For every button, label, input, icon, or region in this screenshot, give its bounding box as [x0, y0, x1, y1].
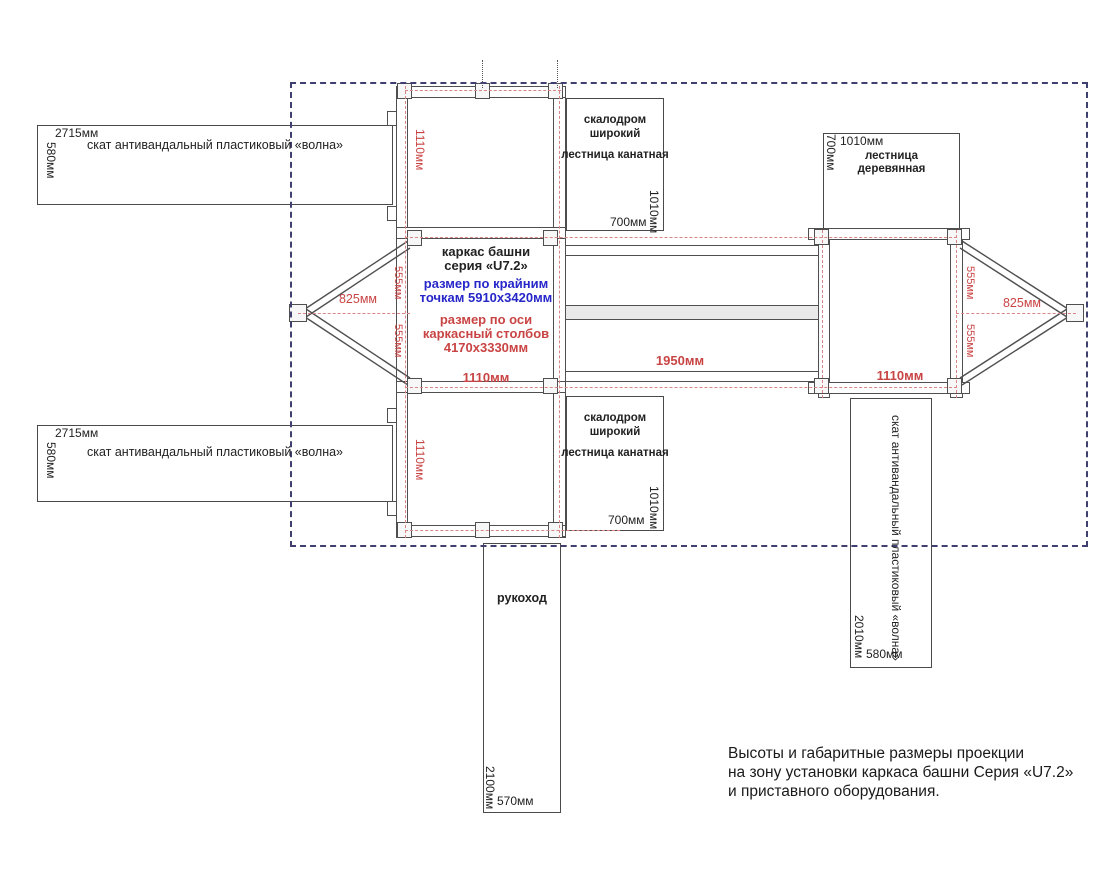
axis-line-825-left — [298, 313, 410, 314]
climb-bottom-label-1: скалодром — [566, 412, 664, 425]
dim-825-right: 825мм — [986, 297, 1058, 310]
dim-1110-right-tower: 1110мм — [845, 369, 955, 382]
monkey-bars-width: 570мм — [497, 795, 534, 808]
outer-size-value: точкам 5910х3420мм — [411, 291, 561, 305]
slide-bottom-label: скат антивандальный пластиковый «волна» — [37, 446, 393, 459]
dim-555-right-bottom: 555мм — [963, 324, 976, 357]
axis-line — [405, 387, 957, 388]
slide-right-width: 580мм — [866, 648, 903, 661]
axis-line — [405, 237, 957, 238]
dim-555-right-top: 555мм — [963, 266, 976, 299]
installation-zone-border — [290, 82, 1088, 547]
outer-size-label: размер по крайним — [411, 277, 561, 291]
axis-size-label-1: размер по оси — [411, 313, 561, 327]
climb-top-label-3: лестница канатная — [548, 149, 682, 162]
caption-line-3: и приставного оборудования. — [728, 782, 1073, 801]
caption-line-2: на зону установки каркаса башни Серия «U… — [728, 763, 1073, 782]
axis-line — [822, 230, 823, 398]
dim-555-left-top: 555мм — [391, 266, 404, 299]
wood-ladder-label-1: лестница — [823, 150, 960, 163]
axis-size-label-2: каркасный столбов — [411, 327, 561, 341]
climb-top-depth: 700мм — [610, 216, 647, 229]
tower-title-1: каркас башни — [411, 245, 561, 259]
axis-tick — [557, 60, 558, 88]
slide-top-label: скат антивандальный пластиковый «волна» — [37, 139, 393, 152]
climb-bottom-label-2: широкий — [566, 426, 664, 439]
axis-line — [956, 230, 957, 398]
axis-line — [405, 86, 406, 538]
wood-ladder-label-2: деревянная — [823, 163, 960, 176]
tower-title-2: серия «U7.2» — [411, 259, 561, 273]
dim-555-left-bottom: 555мм — [391, 324, 404, 357]
climb-top-width: 1010мм — [647, 190, 660, 233]
caption-line-1: Высоты и габаритные размеры проекции — [728, 744, 1073, 763]
monkey-bars-length: 2100мм — [483, 766, 496, 809]
axis-line-825-right — [956, 313, 1076, 314]
slide-bottom-width: 580мм — [44, 442, 57, 479]
dim-825-left: 825мм — [322, 293, 394, 306]
axis-line — [405, 90, 561, 91]
slide-right-length: 2010мм — [852, 615, 865, 658]
dim-1110-top-square: 1110мм — [413, 129, 426, 170]
axis-line — [405, 530, 620, 531]
drawing-caption: Высоты и габаритные размеры проекции на … — [728, 744, 1073, 801]
slide-bottom-length: 2715мм — [55, 427, 98, 440]
monkey-bars-label: рукоход — [483, 592, 561, 605]
dim-1950-bridge: 1950мм — [628, 354, 732, 367]
tower-plan-drawing: скат антивандальный пластиковый «волна» … — [0, 0, 1110, 879]
climb-bottom-width: 1010мм — [647, 486, 660, 529]
slide-right-label: скат антивандальный пластиковый «волна» — [889, 415, 902, 661]
climb-bottom-depth: 700мм — [608, 514, 645, 527]
climb-top-label-2: широкий — [566, 128, 664, 141]
climb-bottom-label-3: лестница канатная — [548, 447, 682, 460]
climb-top-label-1: скалодром — [566, 114, 664, 127]
axis-size-value: 4170х3330мм — [411, 341, 561, 355]
wood-ladder-width: 1010мм — [840, 135, 883, 148]
slide-top-length: 2715мм — [55, 127, 98, 140]
axis-tick — [482, 60, 483, 88]
dim-1110-bottom-square: 1110мм — [413, 439, 426, 480]
slide-top-width: 580мм — [44, 142, 57, 179]
dim-1110-center: 1110мм — [411, 371, 561, 385]
